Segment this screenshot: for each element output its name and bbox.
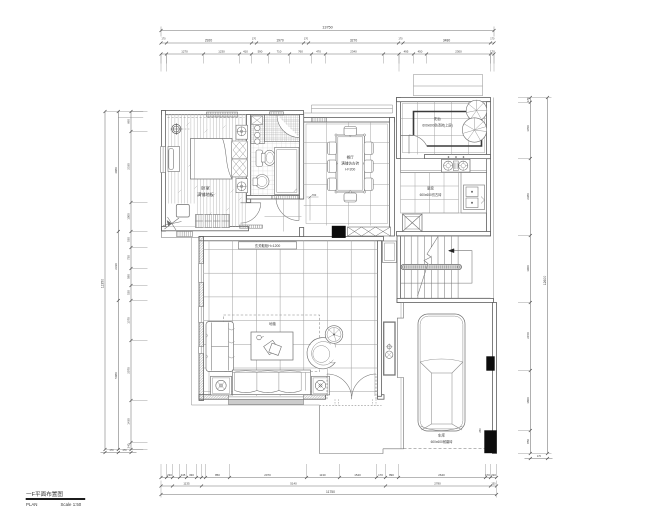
- svg-text:330: 330: [189, 473, 194, 477]
- svg-text:3480: 3480: [443, 39, 451, 43]
- svg-text:2640: 2640: [438, 473, 445, 477]
- svg-text:170: 170: [304, 38, 309, 41]
- svg-text:2780: 2780: [434, 482, 441, 486]
- svg-text:2300: 2300: [455, 50, 462, 54]
- svg-text:2380: 2380: [526, 193, 530, 200]
- svg-text:245: 245: [181, 473, 186, 477]
- svg-text:530: 530: [127, 237, 131, 242]
- svg-text:720: 720: [127, 255, 131, 260]
- svg-text:520: 520: [127, 290, 131, 295]
- svg-text:5080: 5080: [114, 372, 118, 379]
- svg-text:13750: 13750: [322, 26, 333, 30]
- svg-text:2070: 2070: [264, 473, 271, 477]
- svg-text:1370: 1370: [127, 317, 131, 324]
- svg-text:车库: 车库: [438, 433, 446, 438]
- svg-text:2340: 2340: [350, 50, 357, 54]
- svg-text:Scale 1:50: Scale 1:50: [61, 502, 82, 507]
- svg-text:410: 410: [243, 50, 248, 54]
- svg-text:2920: 2920: [205, 39, 213, 43]
- svg-text:850: 850: [215, 473, 220, 477]
- svg-text:1430: 1430: [127, 418, 131, 425]
- svg-text:厨房: 厨房: [427, 186, 434, 191]
- svg-text:170: 170: [122, 449, 127, 452]
- svg-text:170: 170: [161, 38, 166, 41]
- svg-text:150: 150: [491, 483, 496, 486]
- svg-text:170: 170: [490, 50, 495, 54]
- svg-text:满铺地板: 满铺地板: [197, 191, 215, 198]
- svg-text:1540: 1540: [354, 473, 361, 477]
- svg-text:1130: 1130: [319, 473, 326, 477]
- svg-text:760: 760: [298, 50, 303, 54]
- svg-text:170: 170: [398, 38, 403, 41]
- svg-text:600x600防滑砖(上层): 600x600防滑砖(上层): [422, 123, 452, 128]
- svg-text:1135: 1135: [183, 482, 190, 486]
- svg-text:710: 710: [277, 50, 282, 54]
- svg-text:2150: 2150: [526, 332, 530, 339]
- svg-text:240: 240: [127, 443, 131, 448]
- svg-text:890: 890: [389, 473, 394, 477]
- svg-text:600x600仿古砖: 600x600仿古砖: [420, 192, 443, 197]
- svg-text:一F平面布置图: 一F平面布置图: [26, 490, 63, 498]
- svg-text:3270: 3270: [350, 39, 358, 43]
- svg-text:PLAN: PLAN: [26, 502, 37, 507]
- svg-text:1970: 1970: [276, 39, 284, 43]
- svg-text:450: 450: [418, 50, 423, 54]
- svg-text:700: 700: [312, 193, 317, 197]
- svg-text:地毯: 地毯: [269, 321, 276, 326]
- svg-text:餐厅: 餐厅: [347, 155, 355, 160]
- svg-text:220: 220: [491, 473, 496, 477]
- svg-text:1270: 1270: [181, 50, 188, 54]
- svg-text:495: 495: [404, 50, 409, 54]
- svg-text:250: 250: [478, 428, 482, 433]
- svg-text:11750: 11750: [326, 490, 335, 494]
- svg-text:1000: 1000: [127, 213, 131, 220]
- svg-text:170: 170: [109, 449, 114, 452]
- svg-text:850: 850: [526, 439, 530, 444]
- svg-text:690: 690: [127, 119, 131, 124]
- svg-text:1230: 1230: [218, 50, 225, 54]
- svg-text:玄关鞋柜H=1200: 玄关鞋柜H=1200: [255, 243, 281, 248]
- svg-text:12600: 12600: [543, 276, 547, 286]
- svg-text:580: 580: [127, 274, 131, 279]
- svg-text:590: 590: [258, 50, 263, 54]
- svg-text:170: 170: [485, 473, 490, 477]
- svg-text:470: 470: [316, 50, 321, 54]
- svg-text:170: 170: [490, 38, 495, 41]
- svg-text:2330: 2330: [127, 163, 131, 170]
- svg-text:满铺仿古砖: 满铺仿古砖: [341, 161, 359, 166]
- svg-text:2330: 2330: [114, 263, 118, 270]
- svg-text:170: 170: [526, 97, 530, 102]
- svg-text:2070: 2070: [127, 367, 131, 374]
- svg-text:1900: 1900: [526, 265, 530, 272]
- svg-text:230: 230: [167, 473, 172, 477]
- svg-text:阳台: 阳台: [434, 116, 441, 121]
- svg-text:170: 170: [252, 38, 257, 41]
- svg-text:600x600耐磨砖: 600x600耐磨砖: [431, 439, 454, 444]
- svg-text:1700: 1700: [526, 125, 530, 132]
- svg-text:11350: 11350: [101, 279, 105, 288]
- svg-text:1800: 1800: [526, 397, 530, 404]
- svg-text:170: 170: [378, 473, 383, 477]
- svg-text:5140: 5140: [290, 482, 297, 486]
- svg-text:H=200: H=200: [345, 168, 355, 172]
- svg-text:4080: 4080: [114, 167, 118, 174]
- svg-text:170: 170: [537, 455, 542, 458]
- svg-text:卧室: 卧室: [201, 185, 209, 192]
